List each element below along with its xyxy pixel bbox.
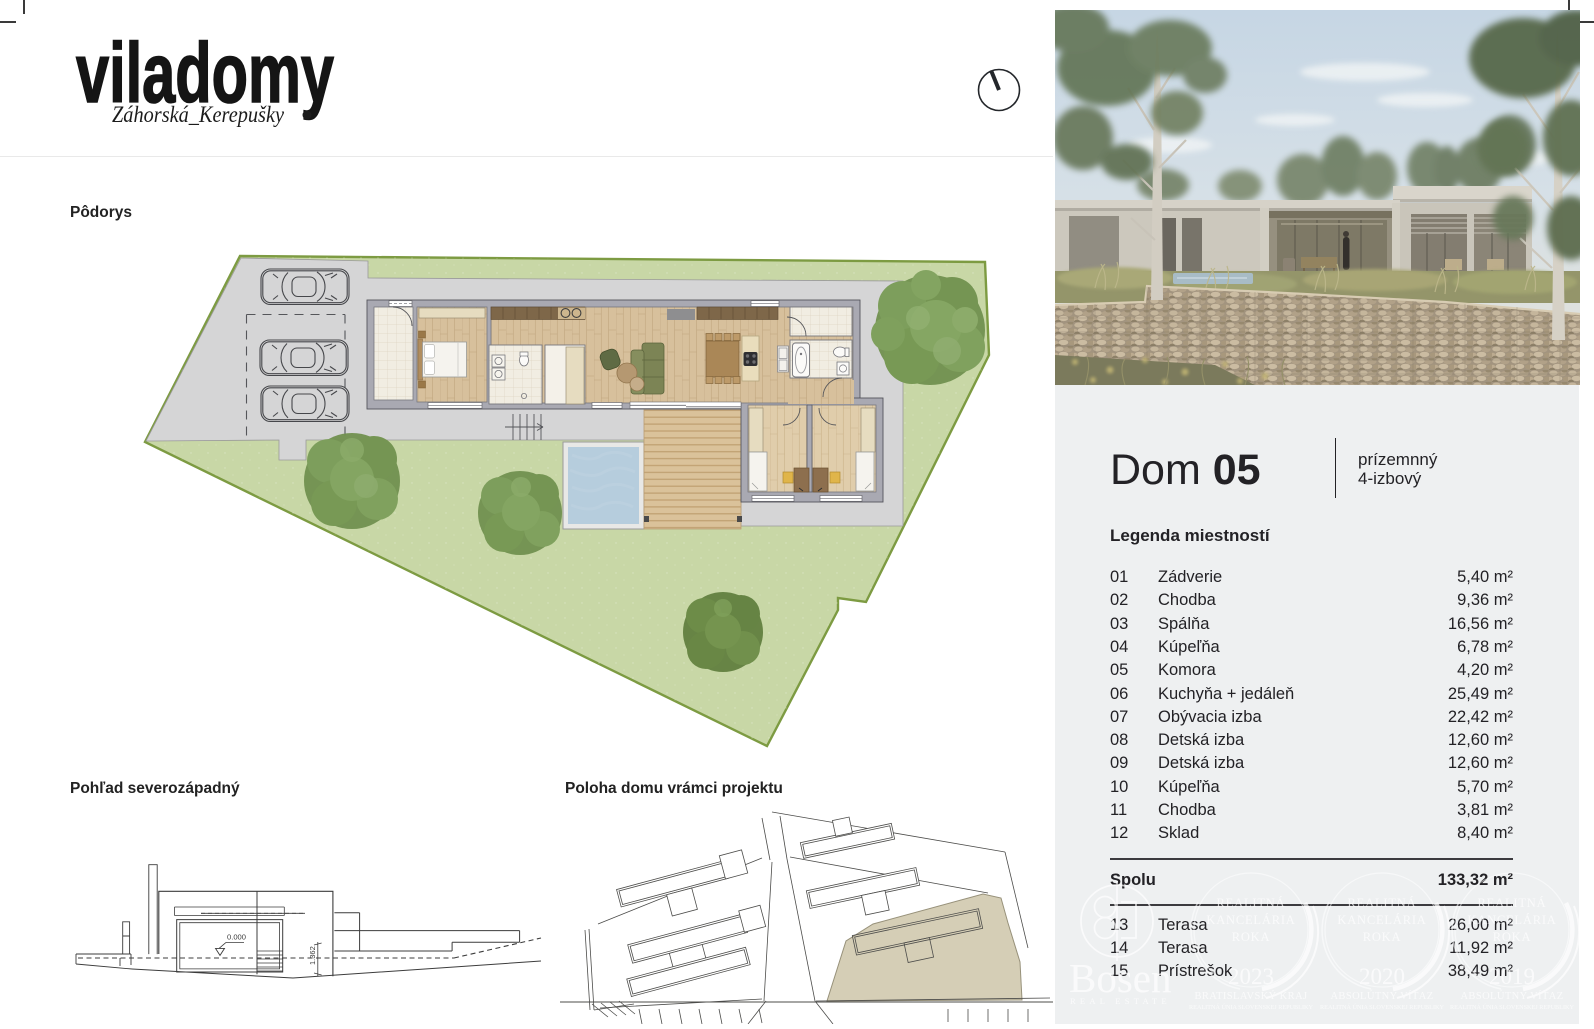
svg-text:2023: 2023 <box>1228 964 1274 989</box>
svg-text:REALITNÁ ÚNIA SLOVENSKEJ REPUB: REALITNÁ ÚNIA SLOVENSKEJ REPUBLIKY <box>1320 1003 1444 1011</box>
svg-text:Záhorská_Kerepušky: Záhorská_Kerepušky <box>112 102 285 127</box>
svg-text:KANCELÁRIA: KANCELÁRIA <box>1337 913 1426 927</box>
svg-text:ROKA: ROKA <box>1232 930 1271 944</box>
svg-text:REALITNÁ ÚNIA SLOVENSKEJ REPUB: REALITNÁ ÚNIA SLOVENSKEJ REPUBLIKY <box>1189 1003 1313 1011</box>
svg-text:REALITNÁ: REALITNÁ <box>1478 896 1547 910</box>
svg-text:0.000: 0.000 <box>227 933 246 942</box>
svg-text:Bosen: Bosen <box>1069 955 1172 1001</box>
svg-text:BRATISLAVSKÝ KRAJ: BRATISLAVSKÝ KRAJ <box>1194 990 1307 1002</box>
svg-text:ROKA: ROKA <box>1363 930 1402 944</box>
svg-text:ABSOLÚTNY VÍŤAZ: ABSOLÚTNY VÍŤAZ <box>1330 990 1433 1002</box>
svg-text:KANCELÁRIA: KANCELÁRIA <box>1206 913 1295 927</box>
svg-text:REAL ESTATE: REAL ESTATE <box>1070 996 1171 1006</box>
svg-text:KANCELÁRIA: KANCELÁRIA <box>1467 913 1556 927</box>
svg-text:REALITNÁ: REALITNÁ <box>1348 896 1417 910</box>
svg-text:ROKA: ROKA <box>1493 930 1532 944</box>
svg-text:2020: 2020 <box>1359 964 1405 989</box>
svg-text:1.362: 1.362 <box>308 946 317 965</box>
svg-text:REALITNÁ: REALITNÁ <box>1217 896 1286 910</box>
svg-text:ABSOLÚTNY VÍŤAZ: ABSOLÚTNY VÍŤAZ <box>1460 990 1563 1002</box>
svg-text:REALITNÁ ÚNIA SLOVENSKEJ REPUB: REALITNÁ ÚNIA SLOVENSKEJ REPUBLIKY <box>1450 1003 1574 1011</box>
svg-text:2019: 2019 <box>1489 964 1535 989</box>
